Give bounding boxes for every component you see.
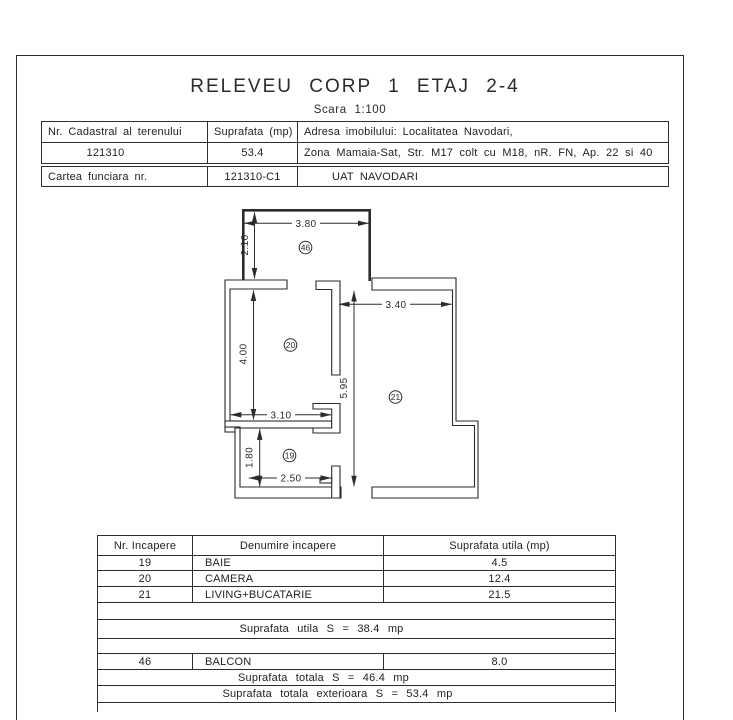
- room-nr: 46: [98, 654, 192, 669]
- exterior-total-row: Suprafata totala exterioara S = 53.4 mp: [98, 686, 615, 703]
- floor-plan: 3.80 2.10 4.00 3.10 1.80 2.: [205, 200, 495, 505]
- info-table-row-values: 121310 53.4 Zona Mamaia-Sat, Str. M17 co…: [42, 143, 668, 163]
- room-nr: 21: [98, 587, 192, 602]
- grand-total-row: Suprafata totala S = 46.4 mp: [98, 670, 615, 686]
- wall-camera-baie: [225, 421, 332, 428]
- wall-interior-top: [316, 281, 340, 375]
- svg-text:19: 19: [285, 451, 295, 461]
- useful-total-text: Suprafata utila S = 38.4 mp: [239, 623, 403, 635]
- scale-label: Scara 1:100: [0, 104, 700, 116]
- room-name: CAMERA: [192, 571, 383, 586]
- table-row: 19 BAIE 4.5: [98, 556, 615, 571]
- room-nr: 20: [98, 571, 192, 586]
- wall-jamb-baie-door: [320, 478, 332, 483]
- room-name: BALCON: [192, 654, 383, 669]
- empty-row: [98, 703, 615, 712]
- suprafata-label: Suprafata (mp): [207, 122, 297, 143]
- wall-living-exterior: [372, 278, 478, 498]
- svg-text:2.10: 2.10: [240, 234, 251, 255]
- table-row: 20 CAMERA 12.4: [98, 571, 615, 587]
- adresa-label: Adresa imobilului: Localitatea Navodari,: [297, 122, 668, 143]
- svg-text:3.10: 3.10: [270, 411, 291, 422]
- carte-funciara-label: Cartea funciara nr.: [42, 167, 207, 186]
- room-name: BAIE: [192, 556, 383, 570]
- empty-row: [98, 639, 615, 654]
- dim-living-height: 5.95: [339, 291, 354, 486]
- room-area: 12.4: [383, 571, 615, 586]
- room-area: 4.5: [383, 556, 615, 570]
- room-nr: 19: [98, 556, 192, 570]
- dim-living-width: 3.40: [339, 299, 452, 311]
- dim-camera-height: 4.00: [239, 291, 254, 420]
- carte-funciara-value: 121310-C1: [207, 167, 297, 186]
- dim-camera-width: 3.10: [231, 409, 331, 421]
- wall-interior-mid: [313, 404, 340, 434]
- room-label-balcon: 46: [299, 241, 312, 254]
- table-row: 21 LIVING+BUCATARIE 21.5: [98, 587, 615, 603]
- exterior-total-text: Suprafata totala exterioara S = 53.4 mp: [222, 688, 452, 700]
- suprafata-value: 53.4: [207, 143, 297, 163]
- svg-text:1.80: 1.80: [245, 447, 256, 468]
- areas-table: Nr. Incapere Denumire incapere Suprafata…: [97, 535, 616, 712]
- room-label-baie: 19: [283, 449, 296, 462]
- room-label-living: 21: [389, 391, 402, 404]
- header-suprafata: Suprafata utila (mp): [383, 536, 615, 555]
- room-area: 8.0: [383, 654, 615, 669]
- dimension-lines: 3.80 2.10 4.00 3.10 1.80 2.: [231, 213, 452, 487]
- page-title: RELEVEU CORP 1 ETAJ 2-4: [0, 76, 710, 98]
- areas-header-row: Nr. Incapere Denumire incapere Suprafata…: [98, 536, 615, 556]
- dim-baie-width: 2.50: [249, 473, 331, 485]
- svg-text:20: 20: [286, 340, 296, 350]
- info-table-row-headers: Nr. Cadastral al terenului Suprafata (mp…: [42, 122, 668, 143]
- svg-text:3.40: 3.40: [385, 300, 406, 311]
- cadastral-survey-sheet: RELEVEU CORP 1 ETAJ 2-4 Scara 1:100 Nr. …: [0, 0, 733, 720]
- room-labels: 46 20 21 19: [283, 241, 402, 462]
- useful-total-row: Suprafata utila S = 38.4 mp: [98, 620, 615, 639]
- header-denumire: Denumire incapere: [192, 536, 383, 555]
- info-table: Nr. Cadastral al terenului Suprafata (mp…: [41, 121, 669, 164]
- svg-text:46: 46: [301, 243, 311, 253]
- header-nr-incapere: Nr. Incapere: [98, 536, 192, 555]
- wall-interior-bottom: [332, 466, 340, 498]
- apartment-walls: [225, 278, 478, 498]
- empty-row: [98, 603, 615, 620]
- room-name: LIVING+BUCATARIE: [192, 587, 383, 602]
- wall-left-exterior: [225, 280, 287, 427]
- room-label-camera: 20: [284, 339, 297, 352]
- dim-balcony-width: 3.80: [245, 218, 369, 230]
- adresa-value: Zona Mamaia-Sat, Str. M17 colt cu M18, n…: [297, 143, 668, 163]
- carte-funciara-row: Cartea funciara nr. 121310-C1 UAT NAVODA…: [42, 167, 668, 186]
- svg-text:4.00: 4.00: [239, 343, 250, 364]
- carte-funciara-table: Cartea funciara nr. 121310-C1 UAT NAVODA…: [41, 166, 669, 187]
- svg-text:21: 21: [391, 392, 401, 402]
- uat-value: UAT NAVODARI: [297, 167, 668, 186]
- nr-cadastral-label: Nr. Cadastral al terenului: [42, 122, 207, 143]
- svg-text:5.95: 5.95: [339, 377, 350, 398]
- svg-text:3.80: 3.80: [295, 219, 316, 230]
- nr-cadastral-value: 121310: [42, 143, 207, 163]
- grand-total-text: Suprafata totala S = 46.4 mp: [238, 672, 409, 684]
- room-area: 21.5: [383, 587, 615, 602]
- balcony-row: 46 BALCON 8.0: [98, 654, 615, 670]
- svg-text:2.50: 2.50: [280, 474, 301, 485]
